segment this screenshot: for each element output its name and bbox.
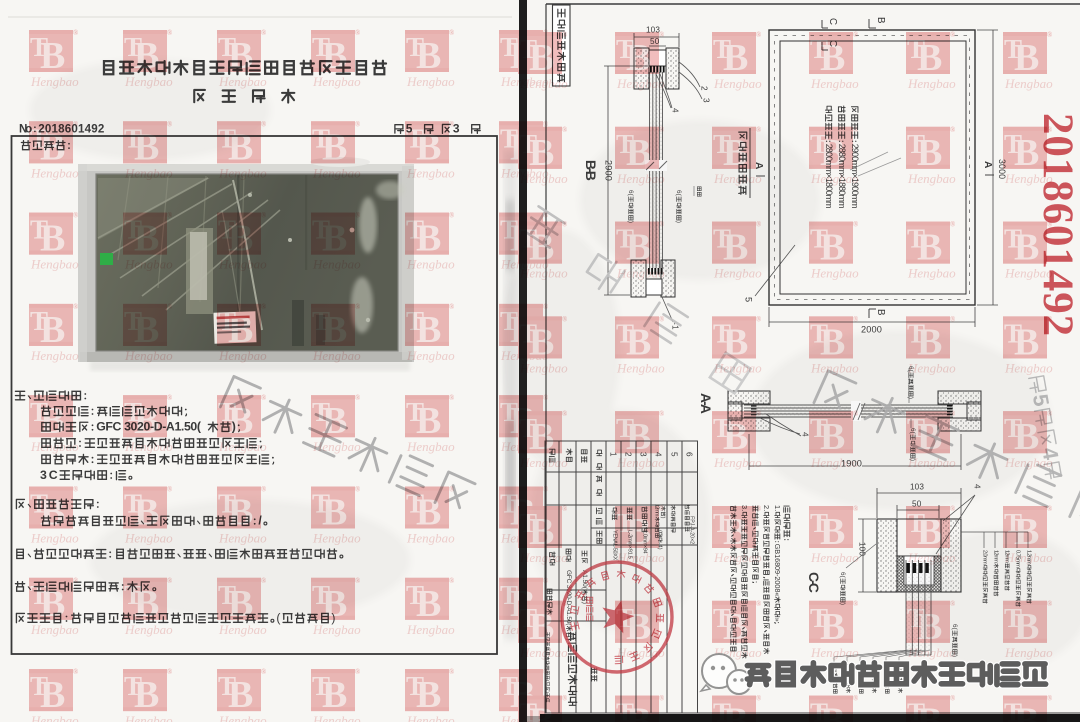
svg-text:®: ®	[543, 668, 549, 676]
svg-text:B: B	[820, 511, 845, 553]
svg-text:B: B	[134, 492, 159, 534]
svg-text:B: B	[917, 511, 942, 553]
svg-text:B: B	[228, 674, 253, 716]
svg-text:Hengbao: Hengbao	[907, 455, 956, 470]
svg-text:®: ®	[562, 695, 568, 703]
svg-text:®: ®	[659, 221, 665, 229]
svg-text:Hengbao: Hengbao	[519, 550, 568, 565]
svg-text:B: B	[820, 37, 845, 79]
svg-text:B: B	[134, 218, 159, 260]
svg-text:Hengbao: Hengbao	[124, 348, 173, 363]
svg-text:Hengbao: Hengbao	[519, 645, 568, 660]
svg-text:®: ®	[167, 212, 173, 220]
svg-text:B: B	[529, 227, 554, 269]
svg-text:®: ®	[261, 668, 267, 676]
svg-text:B: B	[322, 400, 347, 442]
svg-text:B: B	[626, 37, 651, 79]
svg-text:Hengbao: Hengbao	[616, 550, 665, 565]
svg-text:®: ®	[73, 577, 79, 585]
svg-text:®: ®	[449, 303, 455, 311]
svg-text:®: ®	[355, 668, 361, 676]
svg-text:Hengbao: Hengbao	[519, 360, 568, 375]
svg-text:®: ®	[1047, 315, 1053, 323]
svg-text:®: ®	[756, 410, 762, 418]
svg-text:B: B	[626, 606, 651, 648]
svg-text:®: ®	[167, 577, 173, 585]
svg-text:B: B	[40, 674, 65, 716]
svg-text:Hengbao: Hengbao	[218, 713, 267, 722]
svg-text:B: B	[1014, 37, 1039, 79]
svg-text:®: ®	[73, 120, 79, 128]
svg-text:®: ®	[853, 695, 859, 703]
svg-text:B: B	[917, 416, 942, 458]
svg-text:Hengbao: Hengbao	[907, 360, 956, 375]
svg-text:Hengbao: Hengbao	[907, 76, 956, 91]
svg-text:®: ®	[167, 29, 173, 37]
svg-text:®: ®	[73, 29, 79, 37]
svg-text:®: ®	[449, 29, 455, 37]
svg-text:Hengbao: Hengbao	[124, 622, 173, 637]
svg-text:Hengbao: Hengbao	[124, 531, 173, 546]
svg-text:C-C: C-C	[806, 572, 821, 593]
svg-text:Hengbao: Hengbao	[30, 622, 79, 637]
svg-text:Hengbao: Hengbao	[30, 439, 79, 454]
svg-text:Hengbao: Hengbao	[30, 257, 79, 272]
svg-text:®: ®	[73, 486, 79, 494]
svg-text:B: B	[1014, 511, 1039, 553]
svg-text:Hengbao: Hengbao	[616, 266, 665, 281]
svg-text:®: ®	[261, 120, 267, 128]
svg-text:Hengbao: Hengbao	[218, 622, 267, 637]
svg-text:®: ®	[756, 695, 762, 703]
svg-text:Hengbao: Hengbao	[616, 360, 665, 375]
svg-text:®: ®	[756, 221, 762, 229]
svg-text:®: ®	[1047, 695, 1053, 703]
svg-text:®: ®	[659, 600, 665, 608]
svg-text:«: «	[773, 592, 782, 596]
svg-text:®: ®	[261, 486, 267, 494]
svg-text:Hengbao: Hengbao	[810, 455, 859, 470]
svg-text:®: ®	[659, 315, 665, 323]
svg-text:B: B	[228, 309, 253, 351]
svg-text:®: ®	[543, 394, 549, 402]
svg-text:B: B	[228, 126, 253, 168]
svg-text:®: ®	[659, 126, 665, 134]
svg-text:Hengbao: Hengbao	[616, 76, 665, 91]
svg-text:®: ®	[355, 29, 361, 37]
svg-text:B: B	[134, 126, 159, 168]
svg-text:Hengbao: Hengbao	[1004, 76, 1053, 91]
svg-text:Hengbao: Hengbao	[1004, 360, 1053, 375]
svg-text:Hengbao: Hengbao	[312, 257, 361, 272]
svg-text:®: ®	[449, 212, 455, 220]
svg-text:3C: 3C	[40, 468, 58, 482]
svg-text:B: B	[228, 492, 253, 534]
svg-text:B: B	[529, 132, 554, 174]
svg-text:B: B	[723, 37, 748, 79]
svg-text:B: B	[820, 606, 845, 648]
svg-text:A: A	[982, 161, 993, 169]
svg-text:®: ®	[355, 486, 361, 494]
svg-text:®: ®	[543, 212, 549, 220]
svg-text:B: B	[322, 35, 347, 77]
svg-text:Hengbao: Hengbao	[713, 76, 762, 91]
svg-text:Hengbao: Hengbao	[406, 713, 455, 722]
svg-text:B: B	[820, 321, 845, 363]
svg-text:B: B	[626, 321, 651, 363]
svg-text:®: ®	[659, 410, 665, 418]
svg-text:B: B	[322, 674, 347, 716]
svg-text:Hengbao: Hengbao	[218, 439, 267, 454]
svg-text:B: B	[529, 37, 554, 79]
svg-text:B: B	[416, 674, 441, 716]
svg-text:®: ®	[1047, 410, 1053, 418]
svg-text:B: B	[723, 701, 748, 722]
svg-text:®: ®	[167, 486, 173, 494]
svg-text:®: ®	[853, 410, 859, 418]
svg-text:B: B	[875, 309, 886, 315]
svg-text:Hengbao: Hengbao	[218, 348, 267, 363]
svg-text:®: ®	[562, 600, 568, 608]
svg-text:®: ®	[756, 600, 762, 608]
svg-text:A-A: A-A	[698, 393, 713, 414]
svg-text:®: ®	[261, 29, 267, 37]
svg-text:Hengbao: Hengbao	[907, 550, 956, 565]
svg-text:100: 100	[857, 542, 866, 556]
svg-text:2: 2	[699, 86, 708, 91]
svg-text:Hengbao: Hengbao	[124, 439, 173, 454]
svg-text:Hengbao: Hengbao	[218, 257, 267, 272]
svg-text:Hengbao: Hengbao	[30, 531, 79, 546]
svg-text:®: ®	[562, 315, 568, 323]
svg-text:®: ®	[73, 668, 79, 676]
svg-text:GB16809-2008: GB16809-2008	[773, 544, 782, 593]
svg-text:Hengbao: Hengbao	[406, 257, 455, 272]
svg-text:®: ®	[543, 577, 549, 585]
svg-text:®: ®	[167, 394, 173, 402]
svg-text:®: ®	[543, 303, 549, 311]
svg-text:®: ®	[167, 120, 173, 128]
svg-text:B: B	[723, 606, 748, 648]
svg-text:Hengbao: Hengbao	[713, 550, 762, 565]
svg-text:®: ®	[756, 31, 762, 39]
svg-text:®: ®	[1047, 31, 1053, 39]
svg-text:Hengbao: Hengbao	[406, 165, 455, 180]
svg-text:Hengbao: Hengbao	[312, 348, 361, 363]
svg-text:B: B	[820, 701, 845, 722]
svg-text:B: B	[134, 583, 159, 625]
svg-text:Hengbao: Hengbao	[713, 360, 762, 375]
svg-text:®: ®	[355, 303, 361, 311]
svg-text:Hengbao: Hengbao	[312, 165, 361, 180]
svg-text:B: B	[1014, 701, 1039, 722]
svg-text:B: B	[134, 400, 159, 442]
svg-text:B: B	[416, 309, 441, 351]
svg-text:B: B	[1014, 132, 1039, 174]
svg-text:Hengbao: Hengbao	[616, 455, 665, 470]
svg-text:Hengbao: Hengbao	[406, 439, 455, 454]
svg-text:®: ®	[261, 394, 267, 402]
svg-text:®: ®	[950, 600, 956, 608]
svg-text:B: B	[820, 227, 845, 269]
svg-text:®: ®	[853, 600, 859, 608]
svg-text:B: B	[416, 218, 441, 260]
svg-text:B: B	[228, 218, 253, 260]
svg-text:B: B	[228, 400, 253, 442]
svg-text:Hengbao: Hengbao	[312, 74, 361, 89]
svg-text:®: ®	[355, 394, 361, 402]
svg-text:®: ®	[562, 126, 568, 134]
svg-text:®: ®	[355, 212, 361, 220]
svg-text:®: ®	[543, 486, 549, 494]
svg-text:B: B	[875, 17, 886, 23]
svg-text:Hengbao: Hengbao	[312, 622, 361, 637]
svg-text:B: B	[723, 416, 748, 458]
svg-text:B: B	[529, 511, 554, 553]
svg-text:B: B	[1014, 227, 1039, 269]
svg-text:Hengbao: Hengbao	[907, 645, 956, 660]
svg-text:B: B	[917, 227, 942, 269]
svg-text:B: B	[416, 492, 441, 534]
svg-text:®: ®	[167, 303, 173, 311]
svg-text:®: ®	[950, 126, 956, 134]
svg-text:®: ®	[1047, 505, 1053, 513]
svg-text:B: B	[626, 416, 651, 458]
svg-text:B: B	[917, 321, 942, 363]
svg-text:Hengbao: Hengbao	[810, 171, 859, 186]
svg-text:B: B	[1014, 321, 1039, 363]
svg-text:Hengbao: Hengbao	[406, 74, 455, 89]
svg-text:B: B	[322, 583, 347, 625]
svg-text:Hengbao: Hengbao	[810, 76, 859, 91]
svg-text:Hengbao: Hengbao	[312, 531, 361, 546]
svg-text:Hengbao: Hengbao	[810, 645, 859, 660]
svg-text:B: B	[917, 132, 942, 174]
svg-text:B: B	[134, 674, 159, 716]
svg-text:B: B	[40, 400, 65, 442]
svg-text:®: ®	[659, 31, 665, 39]
svg-text:B: B	[1014, 606, 1039, 648]
svg-text:4: 4	[670, 108, 679, 113]
svg-text:Hengbao: Hengbao	[124, 165, 173, 180]
svg-text:Hengbao: Hengbao	[1004, 455, 1053, 470]
svg-text:Hengbao: Hengbao	[519, 455, 568, 470]
svg-text:B: B	[322, 492, 347, 534]
svg-text:®: ®	[355, 577, 361, 585]
svg-text:B: B	[40, 309, 65, 351]
svg-text:®: ®	[167, 668, 173, 676]
svg-text:B: B	[723, 227, 748, 269]
svg-text:C: C	[827, 18, 838, 25]
svg-text:Hengbao: Hengbao	[124, 74, 173, 89]
svg-text:®: ®	[449, 394, 455, 402]
svg-text:®: ®	[261, 212, 267, 220]
svg-text:®: ®	[950, 505, 956, 513]
svg-text:Hengbao: Hengbao	[30, 713, 79, 722]
svg-text:B: B	[322, 126, 347, 168]
svg-text:B: B	[228, 35, 253, 77]
svg-text:®: ®	[562, 31, 568, 39]
svg-text:Hengbao: Hengbao	[218, 74, 267, 89]
svg-text:B: B	[416, 400, 441, 442]
svg-text:5: 5	[744, 297, 754, 302]
svg-text:Hengbao: Hengbao	[907, 266, 956, 281]
svg-text:®: ®	[449, 668, 455, 676]
svg-text:®: ®	[562, 221, 568, 229]
svg-text:®: ®	[853, 31, 859, 39]
svg-text:®: ®	[261, 577, 267, 585]
svg-text:B: B	[416, 583, 441, 625]
svg-text:®: ®	[756, 505, 762, 513]
svg-text:Hengbao: Hengbao	[218, 531, 267, 546]
svg-text:2.: 2.	[762, 505, 771, 511]
svg-text:B: B	[723, 511, 748, 553]
svg-text:B: B	[626, 511, 651, 553]
svg-text:B: B	[626, 132, 651, 174]
svg-text:®: ®	[756, 315, 762, 323]
svg-text:®: ®	[1047, 221, 1053, 229]
svg-text:B: B	[322, 218, 347, 260]
svg-text:®: ®	[950, 410, 956, 418]
svg-text:Hengbao: Hengbao	[810, 360, 859, 375]
svg-text:®: ®	[756, 126, 762, 134]
svg-text:®: ®	[1047, 600, 1053, 608]
svg-text:B: B	[228, 583, 253, 625]
svg-text:Hengbao: Hengbao	[312, 713, 361, 722]
svg-text:Hengbao: Hengbao	[1004, 550, 1053, 565]
svg-text:Hengbao: Hengbao	[30, 348, 79, 363]
svg-text:®: ®	[73, 212, 79, 220]
svg-text:®: ®	[853, 315, 859, 323]
svg-text:1.: 1.	[773, 505, 782, 511]
svg-text:B: B	[529, 321, 554, 363]
svg-text:®: ®	[73, 394, 79, 402]
svg-text:®: ®	[950, 695, 956, 703]
svg-text:B: B	[1014, 416, 1039, 458]
svg-text:®: ®	[73, 303, 79, 311]
svg-text:B: B	[529, 701, 554, 722]
svg-text:Hengbao: Hengbao	[1004, 171, 1053, 186]
svg-text:B: B	[529, 606, 554, 648]
svg-text:Hengbao: Hengbao	[1004, 645, 1053, 660]
svg-text:Hengbao: Hengbao	[616, 645, 665, 660]
svg-text:Hengbao: Hengbao	[1004, 266, 1053, 281]
svg-text:Hengbao: Hengbao	[519, 76, 568, 91]
svg-text:®: ®	[853, 505, 859, 513]
svg-text:®: ®	[562, 505, 568, 513]
svg-text:Hengbao: Hengbao	[519, 171, 568, 186]
svg-text:B: B	[723, 132, 748, 174]
svg-text:B: B	[529, 416, 554, 458]
svg-text:Hengbao: Hengbao	[713, 266, 762, 281]
svg-text:B: B	[322, 309, 347, 351]
svg-text:B: B	[40, 583, 65, 625]
svg-text:B: B	[134, 309, 159, 351]
svg-text:B: B	[40, 35, 65, 77]
svg-text:B: B	[416, 35, 441, 77]
svg-text:Hengbao: Hengbao	[30, 165, 79, 180]
svg-text:Hengbao: Hengbao	[810, 266, 859, 281]
svg-text:®: ®	[1047, 126, 1053, 134]
svg-text:B: B	[40, 126, 65, 168]
svg-text:B: B	[723, 321, 748, 363]
svg-text:B: B	[820, 416, 845, 458]
svg-text:®: ®	[261, 303, 267, 311]
svg-text:®: ®	[950, 31, 956, 39]
svg-text:B: B	[40, 492, 65, 534]
svg-text:®: ®	[950, 315, 956, 323]
svg-text:Hengbao: Hengbao	[406, 531, 455, 546]
svg-text:Hengbao: Hengbao	[713, 455, 762, 470]
svg-text:®: ®	[562, 410, 568, 418]
svg-text:®: ®	[449, 577, 455, 585]
svg-text:®: ®	[853, 221, 859, 229]
svg-text:3: 3	[701, 98, 710, 103]
svg-text:Hengbao: Hengbao	[406, 622, 455, 637]
svg-text:Hengbao: Hengbao	[907, 171, 956, 186]
svg-text:Hengbao: Hengbao	[519, 266, 568, 281]
svg-text:Hengbao: Hengbao	[406, 348, 455, 363]
svg-text:Hengbao: Hengbao	[713, 171, 762, 186]
svg-text:Hengbao: Hengbao	[810, 550, 859, 565]
svg-text:Hengbao: Hengbao	[30, 74, 79, 89]
svg-text:®: ®	[950, 221, 956, 229]
svg-text:B: B	[626, 227, 651, 269]
svg-text:®: ®	[449, 486, 455, 494]
svg-text:®: ®	[355, 120, 361, 128]
svg-text:Hengbao: Hengbao	[218, 165, 267, 180]
svg-text:Hengbao: Hengbao	[312, 439, 361, 454]
svg-text:»: »	[773, 618, 782, 622]
svg-text:Hengbao: Hengbao	[124, 257, 173, 272]
svg-text:B: B	[917, 701, 942, 722]
svg-text:®: ®	[659, 695, 665, 703]
svg-text:Hengbao: Hengbao	[616, 171, 665, 186]
svg-text:®: ®	[659, 505, 665, 513]
svg-text:B: B	[416, 126, 441, 168]
svg-text:B: B	[820, 132, 845, 174]
svg-text:®: ®	[449, 120, 455, 128]
svg-text:B: B	[40, 218, 65, 260]
svg-text:®: ®	[853, 126, 859, 134]
svg-text:B: B	[917, 606, 942, 648]
svg-text:B: B	[626, 701, 651, 722]
svg-text:Hengbao: Hengbao	[124, 713, 173, 722]
svg-text:B: B	[134, 35, 159, 77]
svg-text:B: B	[917, 37, 942, 79]
